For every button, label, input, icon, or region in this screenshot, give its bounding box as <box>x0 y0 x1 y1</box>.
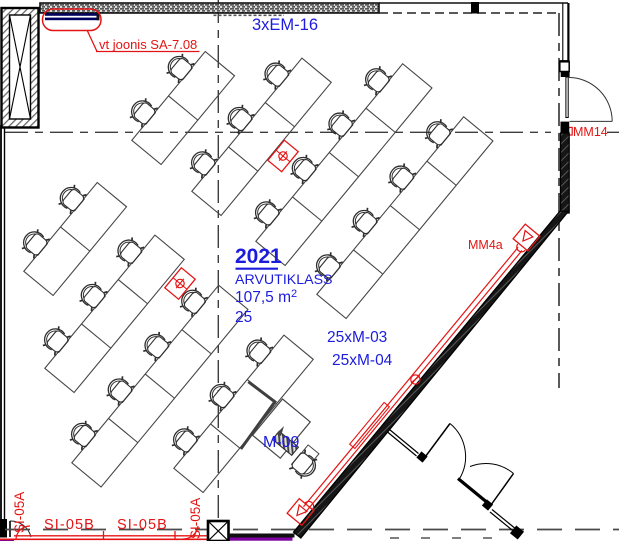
svg-text:3xEM-16: 3xEM-16 <box>252 16 318 34</box>
svg-text:107,5 m2: 107,5 m2 <box>235 288 297 306</box>
svg-text:SI-05B: SI-05B <box>44 517 95 533</box>
svg-text:vt joonis SA-7.08: vt joonis SA-7.08 <box>99 37 197 52</box>
svg-text:SI-05B: SI-05B <box>117 517 168 533</box>
svg-text:SI-05A: SI-05A <box>188 498 203 539</box>
svg-text:25xM-04: 25xM-04 <box>332 352 393 369</box>
svg-text:25xM-03: 25xM-03 <box>327 329 387 346</box>
svg-text:ARVUTIKLASS: ARVUTIKLASS <box>235 272 333 288</box>
svg-text:MM14: MM14 <box>573 125 608 139</box>
svg-text:SI-05A: SI-05A <box>12 492 27 533</box>
svg-text:25: 25 <box>235 309 252 326</box>
svg-text:2021: 2021 <box>235 245 282 268</box>
svg-text:M-09: M-09 <box>263 434 300 451</box>
svg-text:MM4a: MM4a <box>468 238 503 252</box>
